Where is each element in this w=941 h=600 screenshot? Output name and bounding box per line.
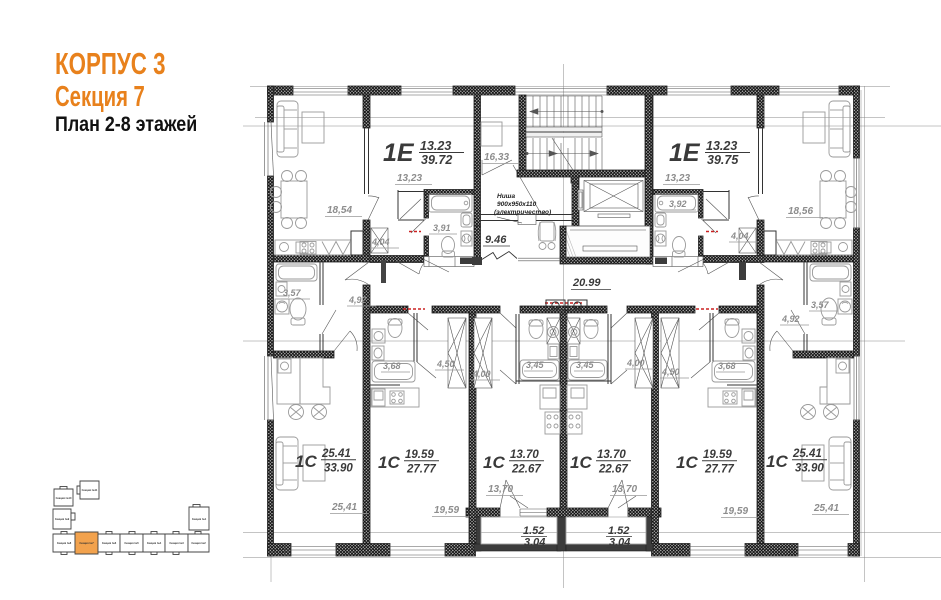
- svg-text:13,23: 13,23: [397, 173, 422, 184]
- svg-text:4,04: 4,04: [371, 237, 390, 247]
- svg-text:1С: 1С: [570, 453, 592, 472]
- svg-text:33.90: 33.90: [324, 463, 353, 475]
- svg-text:Ниша: Ниша: [497, 193, 515, 200]
- svg-text:16,33: 16,33: [484, 152, 509, 163]
- svg-text:Секция №9: Секция №9: [55, 517, 70, 521]
- svg-text:22.67: 22.67: [511, 464, 541, 476]
- svg-text:Секция №3: Секция №3: [169, 541, 184, 545]
- svg-text:3,68: 3,68: [383, 361, 401, 371]
- svg-text:19.59: 19.59: [405, 449, 434, 461]
- svg-text:Секция №11: Секция №11: [82, 488, 98, 492]
- svg-text:9.46: 9.46: [485, 234, 507, 246]
- svg-text:1С: 1С: [295, 452, 317, 471]
- svg-text:Секция №7: Секция №7: [79, 541, 94, 545]
- svg-text:4,00: 4,00: [472, 369, 491, 379]
- svg-text:4,04: 4,04: [730, 231, 749, 241]
- svg-text:Секция №4: Секция №4: [147, 541, 162, 545]
- svg-text:3,57: 3,57: [283, 288, 302, 298]
- svg-text:19.59: 19.59: [703, 449, 732, 461]
- svg-text:4,92: 4,92: [781, 314, 800, 324]
- svg-text:3,68: 3,68: [718, 361, 736, 371]
- svg-text:25.41: 25.41: [321, 448, 351, 460]
- svg-text:13.23: 13.23: [706, 139, 737, 153]
- svg-text:4,00: 4,00: [626, 358, 645, 368]
- svg-text:39.72: 39.72: [421, 153, 452, 167]
- svg-text:Секция №6: Секция №6: [102, 541, 117, 545]
- svg-text:1.52: 1.52: [523, 525, 544, 537]
- svg-text:25.41: 25.41: [792, 448, 822, 460]
- svg-text:1С: 1С: [483, 453, 505, 472]
- svg-text:13,23: 13,23: [665, 173, 690, 184]
- svg-text:3,92: 3,92: [669, 199, 687, 209]
- svg-text:13,70: 13,70: [612, 484, 637, 495]
- svg-text:(электричество): (электричество): [494, 209, 551, 216]
- svg-text:Секция №10: Секция №10: [56, 496, 72, 500]
- svg-text:13.23: 13.23: [420, 139, 451, 153]
- svg-text:3.04: 3.04: [609, 537, 630, 549]
- svg-text:22.67: 22.67: [598, 464, 628, 476]
- svg-text:19,59: 19,59: [434, 505, 459, 516]
- svg-text:13.70: 13.70: [597, 449, 626, 461]
- svg-text:900х950х110: 900х950х110: [497, 201, 537, 208]
- svg-text:4,92: 4,92: [348, 295, 367, 305]
- svg-text:25,41: 25,41: [331, 502, 357, 513]
- svg-text:20.99: 20.99: [572, 277, 601, 289]
- svg-text:39.75: 39.75: [707, 153, 739, 167]
- svg-text:27.77: 27.77: [406, 464, 436, 476]
- svg-text:19,59: 19,59: [723, 506, 748, 517]
- svg-text:Секция №1: Секция №1: [192, 517, 207, 521]
- svg-text:13,70: 13,70: [488, 484, 513, 495]
- svg-text:Секция №2: Секция №2: [191, 541, 206, 545]
- svg-text:18,54: 18,54: [327, 205, 352, 216]
- svg-text:27.77: 27.77: [704, 464, 734, 476]
- svg-text:1С: 1С: [766, 452, 788, 471]
- svg-text:Секция №8: Секция №8: [57, 541, 72, 545]
- svg-text:Секция №5: Секция №5: [124, 541, 139, 545]
- svg-text:13.70: 13.70: [510, 449, 539, 461]
- svg-text:1С: 1С: [676, 453, 698, 472]
- svg-text:3,91: 3,91: [433, 223, 451, 233]
- svg-text:3,45: 3,45: [526, 360, 545, 370]
- svg-text:18,56: 18,56: [788, 206, 813, 217]
- svg-text:1С: 1С: [378, 453, 400, 472]
- svg-text:3,57: 3,57: [811, 300, 830, 310]
- svg-text:33.90: 33.90: [795, 463, 824, 475]
- svg-text:1Е: 1Е: [383, 139, 415, 167]
- svg-text:4,50: 4,50: [436, 359, 455, 369]
- svg-text:25,41: 25,41: [813, 503, 839, 514]
- svg-text:1.52: 1.52: [608, 525, 629, 537]
- svg-text:3.04: 3.04: [524, 537, 545, 549]
- svg-text:3,45: 3,45: [576, 360, 595, 370]
- svg-text:1Е: 1Е: [669, 139, 701, 167]
- svg-text:4,50: 4,50: [661, 367, 680, 377]
